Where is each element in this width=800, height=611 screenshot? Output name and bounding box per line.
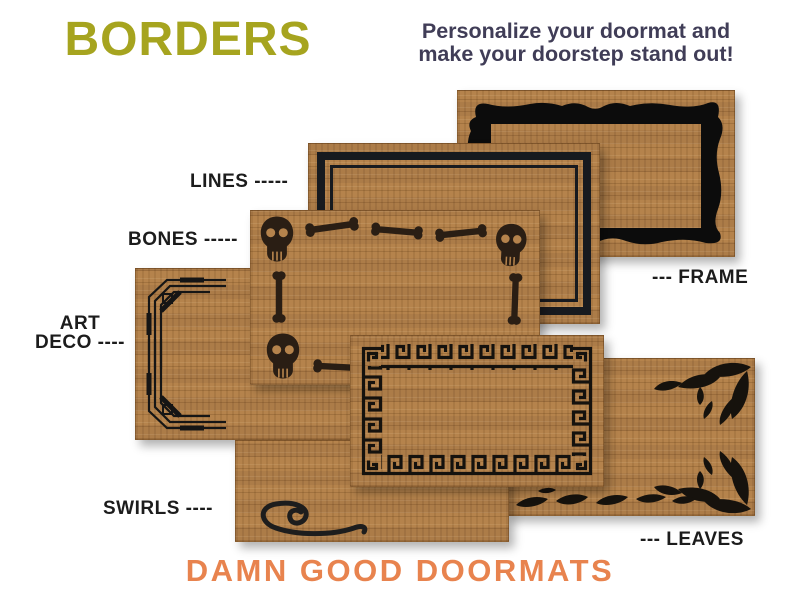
bone-icon [302,215,362,239]
page-subtitle: Personalize your doormat and make your d… [358,20,794,66]
leaf-strip-icon [508,485,698,511]
subtitle-line-1: Personalize your doormat and [358,20,794,43]
label-lines: LINES ----- [190,171,288,193]
art-deco-corner-icon [146,339,226,431]
label-frame: --- FRAME [652,267,748,289]
skull-icon [493,222,529,268]
bone-icon [271,269,287,325]
subtitle-line-2: make your doorstep stand out! [358,43,794,66]
label-bones: BONES ----- [128,229,238,251]
swirl-icon [252,499,377,537]
label-swirls: SWIRLS ---- [103,498,213,520]
leaf-corner-icon [654,361,754,427]
skull-icon [259,215,295,263]
label-art-deco-line-1: ART [24,314,136,333]
label-leaves: --- LEAVES [640,529,744,551]
label-art-deco: ART DECO ---- [24,314,136,352]
label-art-deco-line-2: DECO ---- [24,333,136,352]
brand-wordmark: DAMN GOOD DOORMATS [0,553,800,589]
greek-key-doormat [350,335,604,487]
skull-icon [265,331,301,381]
page-title: BORDERS [58,12,318,67]
bone-icon [506,271,524,328]
bone-icon [432,222,489,244]
greek-key-border-icon [351,336,603,486]
doormat-borders-graphic: BORDERS Personalize your doormat and mak… [0,0,800,611]
bone-icon [368,221,425,242]
